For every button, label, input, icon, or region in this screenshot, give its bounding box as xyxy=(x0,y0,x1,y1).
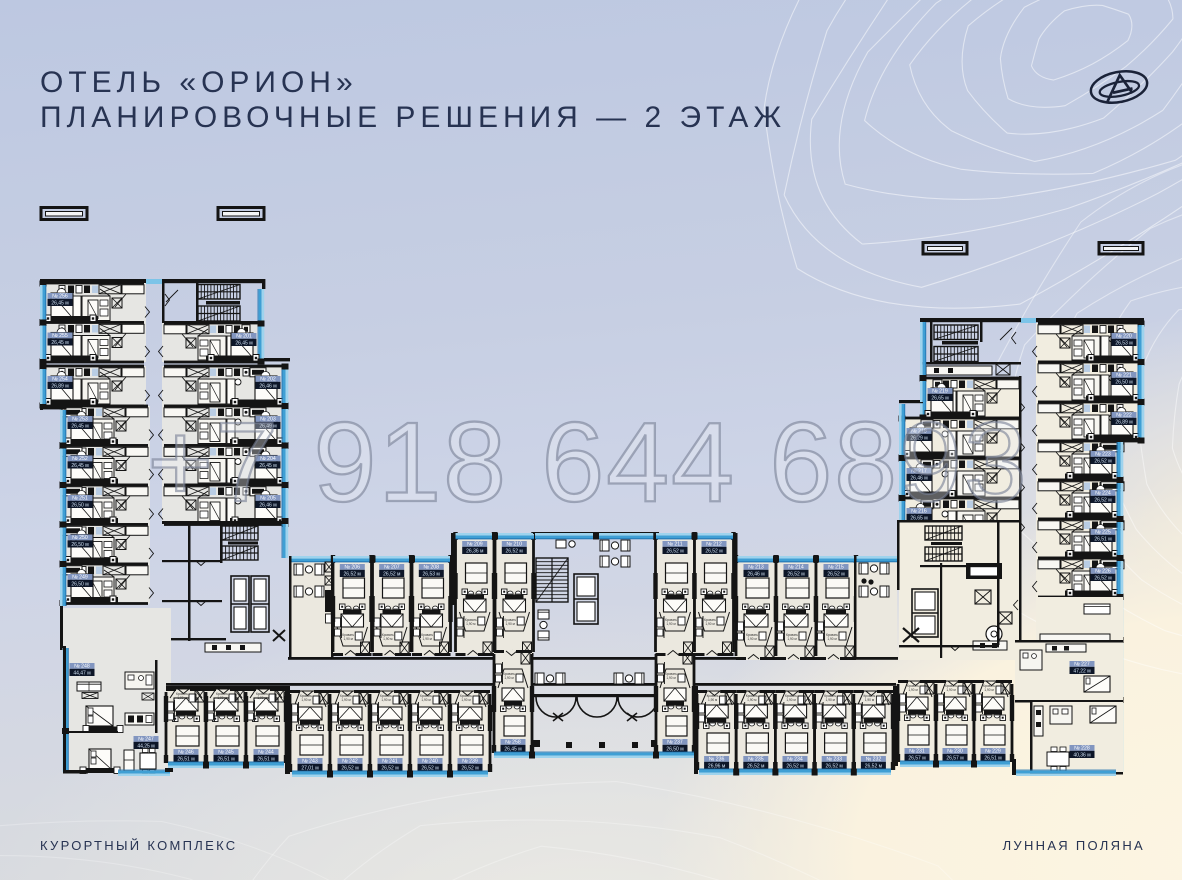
svg-text:1,90 м: 1,90 м xyxy=(666,676,675,680)
svg-text:1,90 м: 1,90 м xyxy=(383,637,392,641)
svg-text:№ 256: № 256 xyxy=(52,294,68,300)
svg-text:№ 245: № 245 xyxy=(218,750,234,756)
svg-text:1,90 м: 1,90 м xyxy=(865,698,874,702)
svg-text:26,52 м: 26,52 м xyxy=(1094,498,1112,504)
svg-text:26,89 м: 26,89 м xyxy=(51,384,69,390)
svg-text:№ 233: № 233 xyxy=(826,757,842,763)
svg-text:№ 244: № 244 xyxy=(258,750,274,756)
svg-text:№ 251: № 251 xyxy=(72,496,88,502)
svg-text:26,52 м: 26,52 м xyxy=(506,549,524,555)
svg-text:№ 211: № 211 xyxy=(667,542,682,548)
svg-text:№ 230: № 230 xyxy=(947,749,963,755)
svg-text:26,52 м: 26,52 м xyxy=(1094,576,1112,582)
svg-text:1,90 м: 1,90 м xyxy=(708,698,717,702)
svg-text:1,90 м: 1,90 м xyxy=(908,688,917,692)
svg-text:26,52 м: 26,52 м xyxy=(383,572,401,578)
svg-text:+7 918 644 6893: +7 918 644 6893 xyxy=(147,399,1028,525)
svg-text:1,90 м: 1,90 м xyxy=(946,688,955,692)
svg-text:26,45 м: 26,45 м xyxy=(51,340,69,346)
svg-text:№ 255: № 255 xyxy=(52,333,68,339)
svg-text:№ 241: № 241 xyxy=(382,759,398,765)
svg-text:26,45 м: 26,45 м xyxy=(71,424,89,430)
svg-text:1,90 м: 1,90 м xyxy=(705,622,714,626)
svg-text:1,90 м: 1,90 м xyxy=(461,698,470,702)
svg-text:1,90 м: 1,90 м xyxy=(787,637,796,641)
svg-text:1,90 м: 1,90 м xyxy=(341,698,350,702)
svg-text:№ 208: № 208 xyxy=(423,565,439,571)
svg-text:№ 207: № 207 xyxy=(384,565,400,571)
svg-text:№ 209: № 209 xyxy=(467,542,483,548)
svg-text:1,90 м: 1,90 м xyxy=(827,637,836,641)
svg-text:1,90 м: 1,90 м xyxy=(421,698,430,702)
svg-text:№ 226: № 226 xyxy=(1095,569,1111,575)
svg-text:№ 228: № 228 xyxy=(1074,746,1090,752)
svg-text:№ 253: № 253 xyxy=(72,417,88,423)
svg-text:№ 234: № 234 xyxy=(787,757,803,763)
svg-text:1,90 м: 1,90 м xyxy=(381,698,390,702)
svg-text:1,90 м: 1,90 м xyxy=(301,698,310,702)
svg-text:26,52 м: 26,52 м xyxy=(666,549,684,555)
svg-text:1,90 м: 1,90 м xyxy=(786,698,795,702)
svg-text:№ 229: № 229 xyxy=(985,749,1001,755)
svg-text:40,36 м: 40,36 м xyxy=(1073,753,1091,759)
svg-text:1,90 м: 1,90 м xyxy=(747,637,756,641)
svg-text:1,90 м: 1,90 м xyxy=(506,622,515,626)
svg-text:№ 249: № 249 xyxy=(72,575,88,581)
svg-text:26,46 м: 26,46 м xyxy=(747,572,765,578)
svg-text:№ 227: № 227 xyxy=(1074,662,1090,668)
svg-text:26,52 м: 26,52 м xyxy=(344,572,362,578)
svg-text:№ 235: № 235 xyxy=(748,757,764,763)
svg-text:1,90 м: 1,90 м xyxy=(984,688,993,692)
svg-text:44,47 м: 44,47 м xyxy=(73,671,91,677)
svg-text:26,50 м: 26,50 м xyxy=(71,503,89,509)
svg-text:26,36 м: 26,36 м xyxy=(466,549,484,555)
svg-text:1,90 м: 1,90 м xyxy=(466,622,475,626)
svg-text:26,52 м: 26,52 м xyxy=(1094,459,1112,465)
svg-text:№ 246: № 246 xyxy=(178,750,194,756)
svg-text:47,22 м: 47,22 м xyxy=(1073,669,1091,675)
svg-text:№ 258: № 258 xyxy=(505,740,521,746)
svg-text:№ 239: № 239 xyxy=(462,759,478,765)
svg-text:№ 252: № 252 xyxy=(72,456,88,462)
svg-text:№ 219: № 219 xyxy=(932,389,948,395)
svg-text:№ 202: № 202 xyxy=(260,377,276,383)
svg-text:26,52 м: 26,52 м xyxy=(705,549,723,555)
svg-text:1,90 м: 1,90 м xyxy=(344,637,353,641)
svg-text:1,90 м: 1,90 м xyxy=(257,696,266,700)
svg-text:26,53 м: 26,53 м xyxy=(423,572,441,578)
svg-text:26,45 м: 26,45 м xyxy=(71,463,89,469)
svg-text:1,90 м: 1,90 м xyxy=(423,637,432,641)
svg-text:№ 242: № 242 xyxy=(342,759,358,765)
svg-text:№ 225: № 225 xyxy=(1095,530,1111,536)
svg-text:№ 236: № 236 xyxy=(709,757,725,763)
svg-text:26,45 м: 26,45 м xyxy=(51,301,69,307)
svg-text:№ 201: № 201 xyxy=(236,334,252,340)
svg-text:№ 206: № 206 xyxy=(344,565,360,571)
svg-text:1,90 м: 1,90 м xyxy=(177,696,186,700)
svg-text:№ 214: № 214 xyxy=(788,565,804,571)
svg-text:1,90 м: 1,90 м xyxy=(826,698,835,702)
svg-text:№ 247: № 247 xyxy=(138,737,154,743)
svg-text:1,90 м: 1,90 м xyxy=(217,696,226,700)
svg-text:№ 231: № 231 xyxy=(909,749,925,755)
svg-text:26,52 м: 26,52 м xyxy=(787,572,805,578)
svg-text:26,50 м: 26,50 м xyxy=(71,542,89,548)
svg-text:№ 212: № 212 xyxy=(706,542,722,548)
svg-text:26,53 м: 26,53 м xyxy=(1115,341,1133,347)
svg-text:№ 210: № 210 xyxy=(506,542,522,548)
svg-text:26,50 м: 26,50 м xyxy=(1115,380,1133,386)
svg-text:№ 224: № 224 xyxy=(1095,491,1111,497)
svg-text:26,45 м: 26,45 м xyxy=(235,341,253,347)
svg-text:1,90 м: 1,90 м xyxy=(747,698,756,702)
svg-text:26,89 м: 26,89 м xyxy=(1115,420,1133,426)
svg-text:26,51 м: 26,51 м xyxy=(1094,537,1112,543)
svg-text:№ 221: № 221 xyxy=(1116,373,1132,379)
svg-text:№ 220: № 220 xyxy=(1116,334,1132,340)
svg-text:№ 243: № 243 xyxy=(302,759,318,765)
svg-text:№ 223: № 223 xyxy=(1095,452,1111,458)
svg-text:26,46 м: 26,46 м xyxy=(259,384,277,390)
svg-text:26,52 м: 26,52 м xyxy=(827,572,845,578)
svg-text:№ 222: № 222 xyxy=(1116,413,1132,419)
svg-text:26,50 м: 26,50 м xyxy=(71,582,89,588)
svg-text:№ 215: № 215 xyxy=(828,565,844,571)
svg-text:№ 250: № 250 xyxy=(72,535,88,541)
svg-text:№ 237: № 237 xyxy=(667,740,683,746)
svg-text:1,90 м: 1,90 м xyxy=(504,676,513,680)
svg-text:№ 254: № 254 xyxy=(52,377,68,383)
svg-text:№ 248: № 248 xyxy=(74,664,90,670)
svg-text:№ 213: № 213 xyxy=(748,565,764,571)
svg-text:№ 232: № 232 xyxy=(866,757,882,763)
svg-text:1,90 м: 1,90 м xyxy=(666,622,675,626)
svg-text:№ 240: № 240 xyxy=(422,759,438,765)
